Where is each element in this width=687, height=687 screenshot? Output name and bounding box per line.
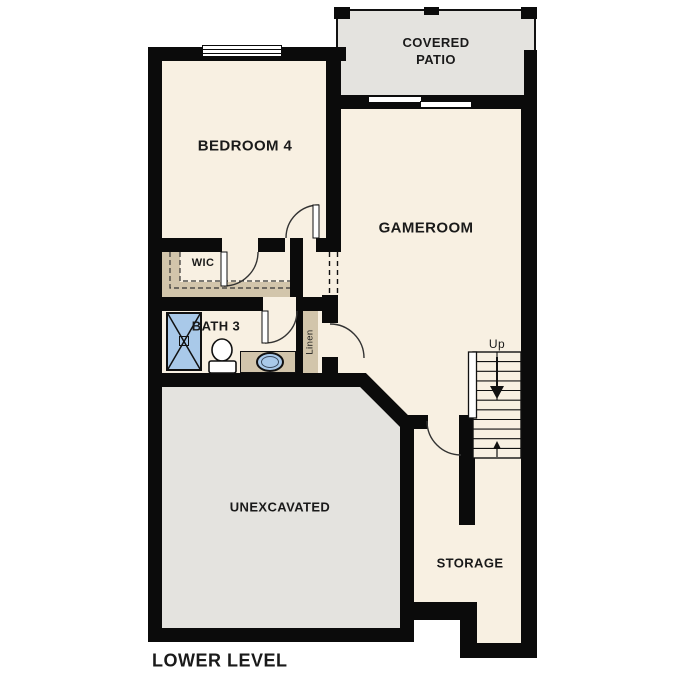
wall-bedroom-bottom-a	[148, 238, 222, 252]
wall-storage-step-a	[400, 602, 460, 620]
wall-left-exterior	[148, 47, 162, 387]
wall-hall-mid-a	[322, 295, 338, 323]
wall-linen-left	[296, 311, 303, 380]
wall-bath-north-b	[296, 297, 322, 311]
wall-wic-right	[290, 238, 303, 297]
wic-label: WIC	[192, 257, 215, 269]
bath3-label: BATH 3	[192, 319, 240, 334]
wall-bath-north-a	[148, 297, 263, 311]
bedroom-window	[202, 45, 282, 57]
wall-bedroom-bottom-b	[258, 238, 285, 252]
wall-under-stairs	[459, 415, 475, 525]
window-mullion	[203, 49, 281, 50]
wall-storage-door-stub	[407, 415, 428, 429]
wall-bedroom-gameroom	[326, 47, 341, 238]
sliding-door-panel-left	[368, 96, 422, 103]
patio-post-center	[424, 7, 439, 15]
plan-title: LOWER LEVEL	[152, 651, 288, 672]
window-mullion	[203, 53, 281, 54]
floor-plan: COVERED PATIO BEDROOM 4 GAMEROOM WIC BAT…	[0, 0, 687, 687]
gameroom-label: GAMEROOM	[379, 220, 474, 237]
sliding-door-panel-right	[420, 101, 472, 108]
shower-drain	[179, 336, 189, 346]
wall-bedroom-bottom-c	[316, 238, 341, 252]
stairs-up-label: Up	[489, 337, 505, 351]
wall-right-exterior	[521, 95, 537, 658]
unexcavated-label: UNEXCAVATED	[230, 500, 330, 515]
bedroom4-label: BEDROOM 4	[198, 138, 292, 155]
vanity-counter	[240, 351, 296, 373]
wall-hall-mid-b	[322, 357, 338, 380]
linen-label: Linen	[305, 329, 316, 354]
wall-storage-bottom	[460, 643, 537, 658]
patio-post-right	[521, 7, 537, 19]
floor-gameroom	[326, 95, 521, 415]
storage-label: STORAGE	[437, 556, 504, 571]
patio-post-left	[334, 7, 350, 19]
covered-patio-label: COVERED PATIO	[386, 35, 486, 69]
